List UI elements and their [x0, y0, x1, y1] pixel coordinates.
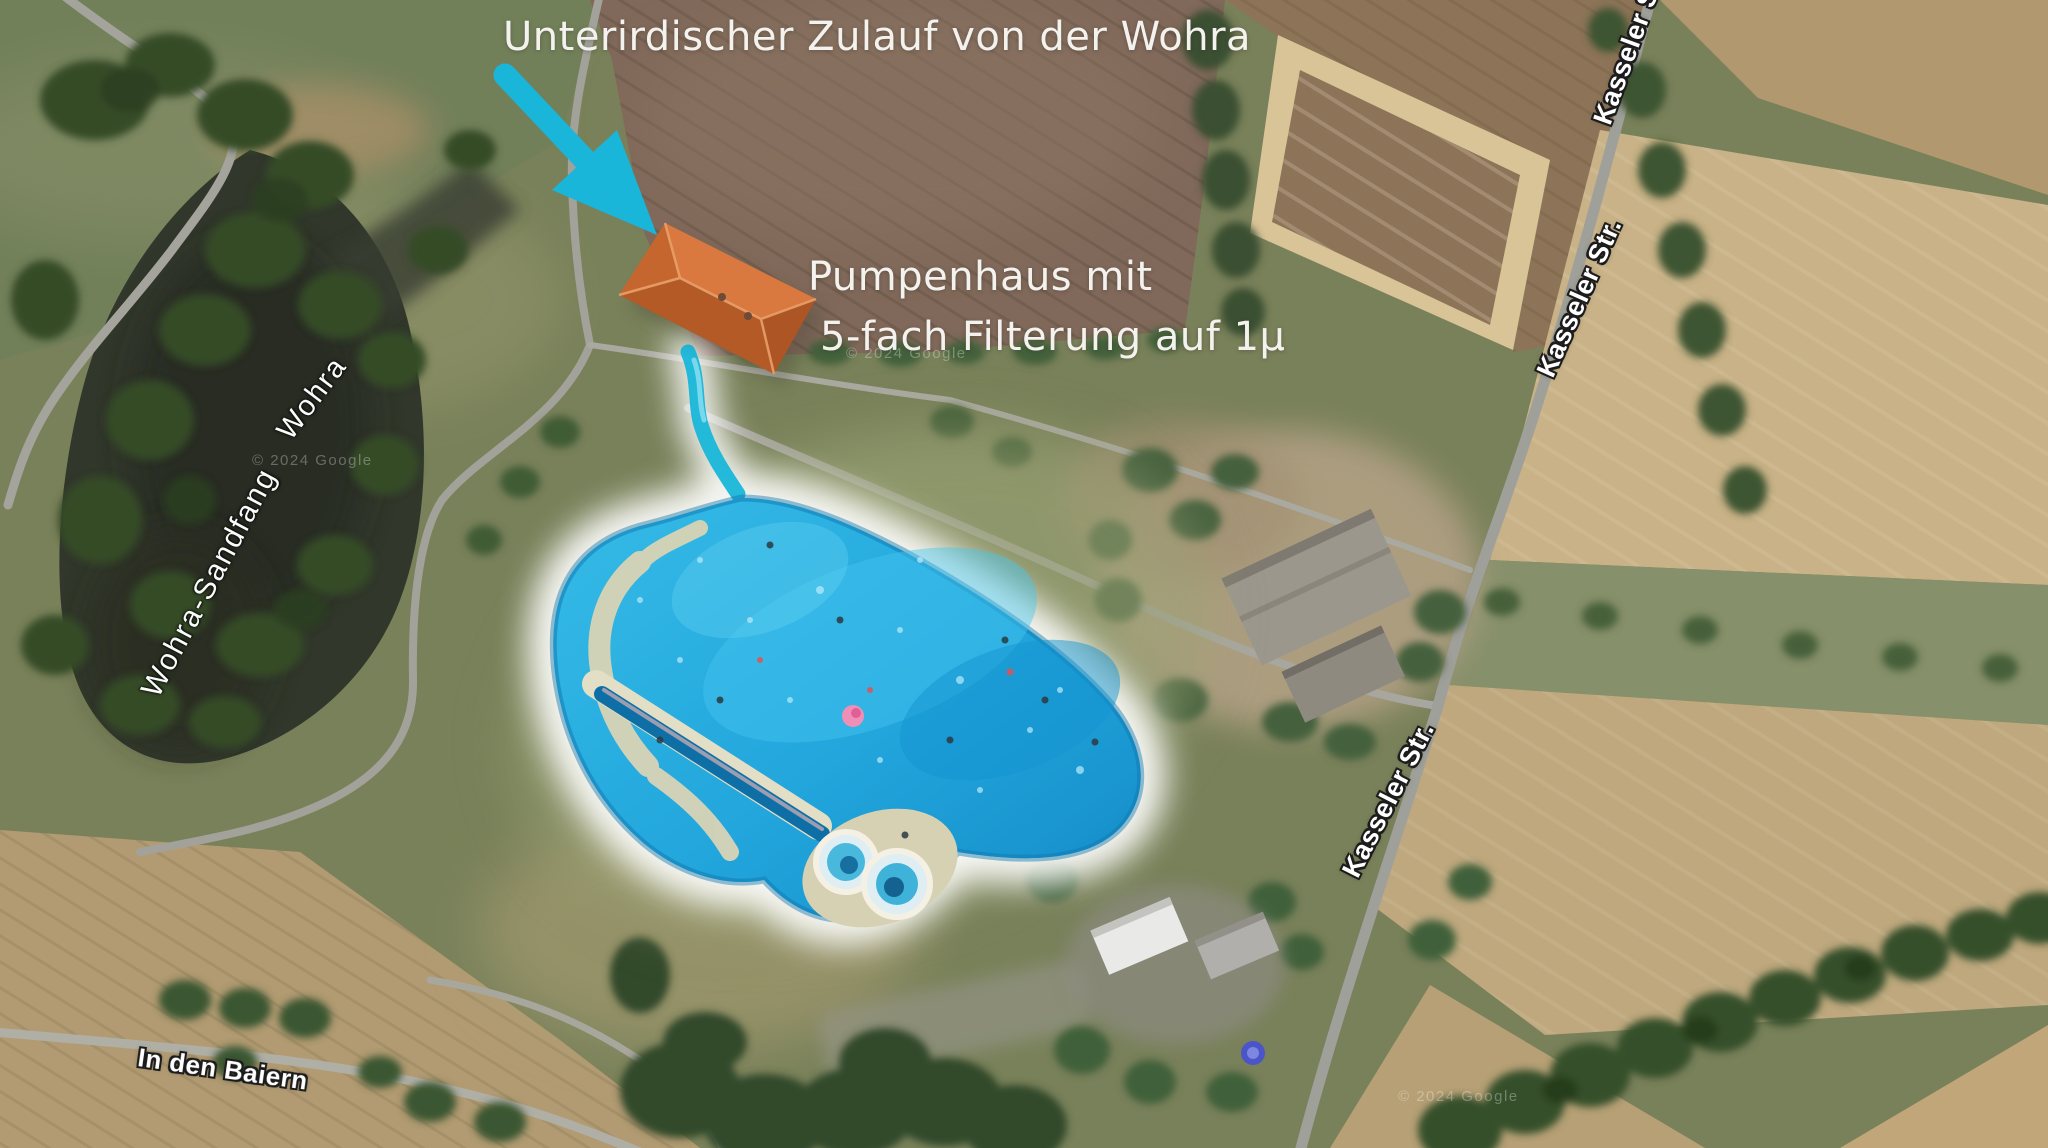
google-watermark: © 2024 Google [1398, 1088, 1519, 1105]
inflow-annotation-label: Unterirdischer Zulauf von der Wohra [503, 14, 1251, 60]
google-watermark: © 2024 Google [252, 452, 373, 469]
satellite-imagery [0, 0, 2048, 1148]
pumphouse-annotation-line2: 5-fach Filterung auf 1µ [820, 314, 1285, 360]
pumphouse-annotation-line1: Pumpenhaus mit [808, 254, 1153, 300]
map-canvas: Wohra Wohra-Sandfang Kasseler Str. Kasse… [0, 0, 2048, 1148]
